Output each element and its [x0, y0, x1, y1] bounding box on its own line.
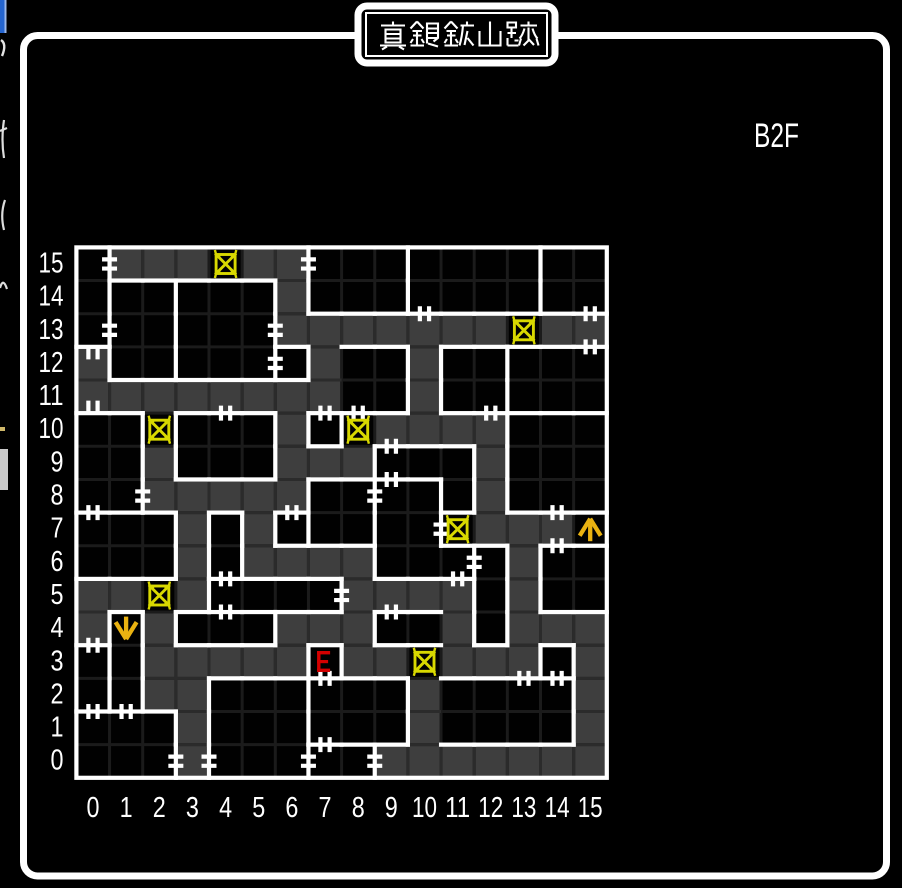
- svg-text:5: 5: [252, 792, 265, 824]
- svg-text:B2F: B2F: [754, 117, 799, 155]
- svg-text:9: 9: [385, 792, 398, 824]
- svg-text:8: 8: [352, 792, 365, 824]
- svg-text:7: 7: [51, 513, 64, 545]
- svg-text:2: 2: [153, 792, 166, 824]
- svg-text:15: 15: [578, 792, 603, 824]
- svg-text:10: 10: [412, 792, 437, 824]
- svg-text:13: 13: [511, 792, 536, 824]
- svg-text:1: 1: [120, 792, 133, 824]
- svg-text:6: 6: [285, 792, 298, 824]
- svg-text:13: 13: [39, 314, 64, 346]
- svg-text:9: 9: [51, 446, 64, 478]
- svg-text:5: 5: [51, 579, 64, 611]
- svg-text:0: 0: [87, 792, 100, 824]
- svg-text:0: 0: [51, 745, 64, 777]
- svg-text:3: 3: [186, 792, 199, 824]
- svg-text:12: 12: [478, 792, 503, 824]
- svg-text:8: 8: [51, 480, 64, 512]
- svg-text:11: 11: [39, 380, 64, 412]
- svg-text:2: 2: [51, 678, 64, 710]
- svg-text:15: 15: [39, 248, 64, 280]
- svg-text:3: 3: [51, 645, 64, 677]
- svg-text:7: 7: [319, 792, 332, 824]
- svg-text:14: 14: [39, 281, 64, 313]
- svg-text:12: 12: [39, 347, 64, 379]
- svg-text:6: 6: [51, 546, 64, 578]
- svg-text:1: 1: [51, 712, 64, 744]
- svg-text:14: 14: [545, 792, 570, 824]
- svg-text:4: 4: [219, 792, 232, 824]
- svg-text:10: 10: [39, 413, 64, 445]
- svg-text:11: 11: [445, 792, 470, 824]
- svg-text:4: 4: [51, 612, 64, 644]
